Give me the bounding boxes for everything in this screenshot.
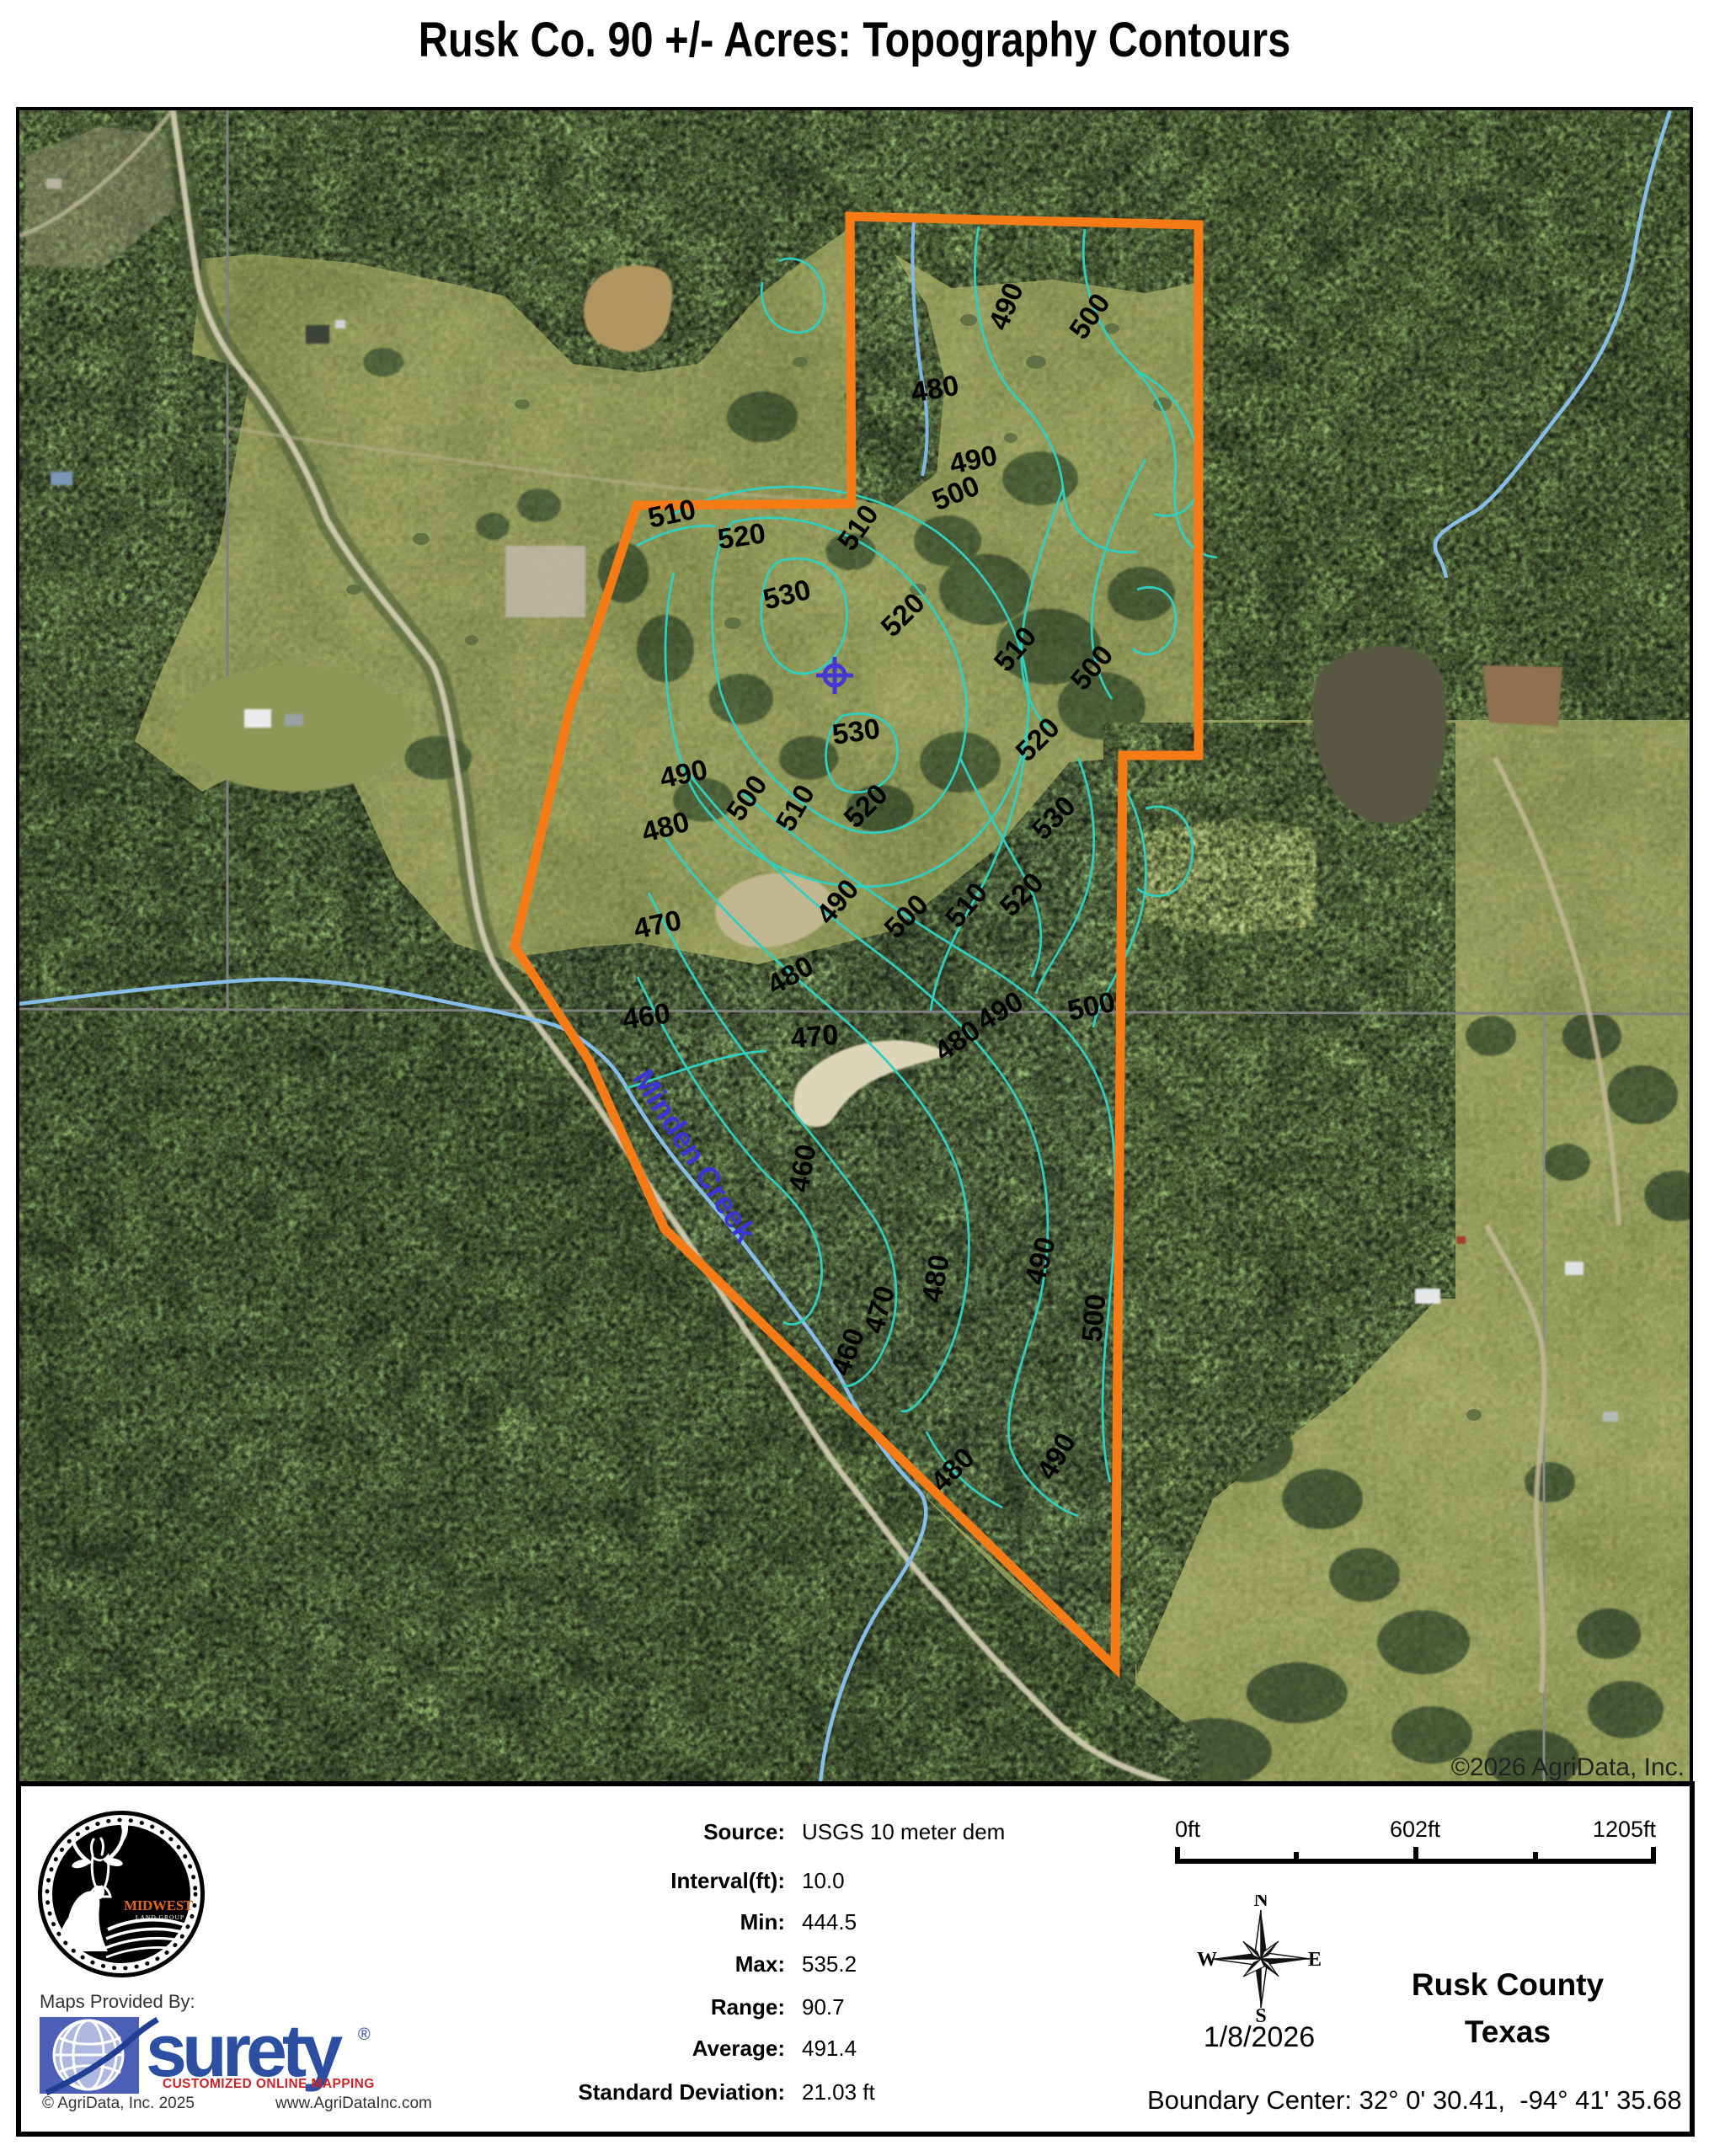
svg-text:©2026 AgriData, Inc.: ©2026 AgriData, Inc.	[1451, 1753, 1685, 1781]
svg-text:CUSTOMIZED ONLINE MAPPING: CUSTOMIZED ONLINE MAPPING	[163, 2077, 375, 2091]
svg-text:470: 470	[789, 1019, 840, 1055]
svg-text:®: ®	[358, 2025, 371, 2044]
svg-text:MIDWEST: MIDWEST	[124, 1897, 194, 1913]
svg-text:520: 520	[716, 517, 767, 556]
svg-text:0ft: 0ft	[1175, 1817, 1201, 1842]
svg-text:S: S	[1255, 2005, 1266, 2023]
svg-text:N: N	[1253, 1895, 1268, 1911]
svg-text:602ft: 602ft	[1390, 1817, 1441, 1842]
svg-text:E: E	[1308, 1949, 1322, 1971]
svg-text:530: 530	[830, 712, 882, 751]
svg-text:460: 460	[621, 997, 672, 1036]
svg-text:W: W	[1197, 1949, 1217, 1971]
svg-text:500: 500	[1076, 1293, 1113, 1343]
svg-text:LAND GROUP: LAND GROUP	[136, 1913, 184, 1921]
svg-text:1205ft: 1205ft	[1593, 1817, 1657, 1842]
